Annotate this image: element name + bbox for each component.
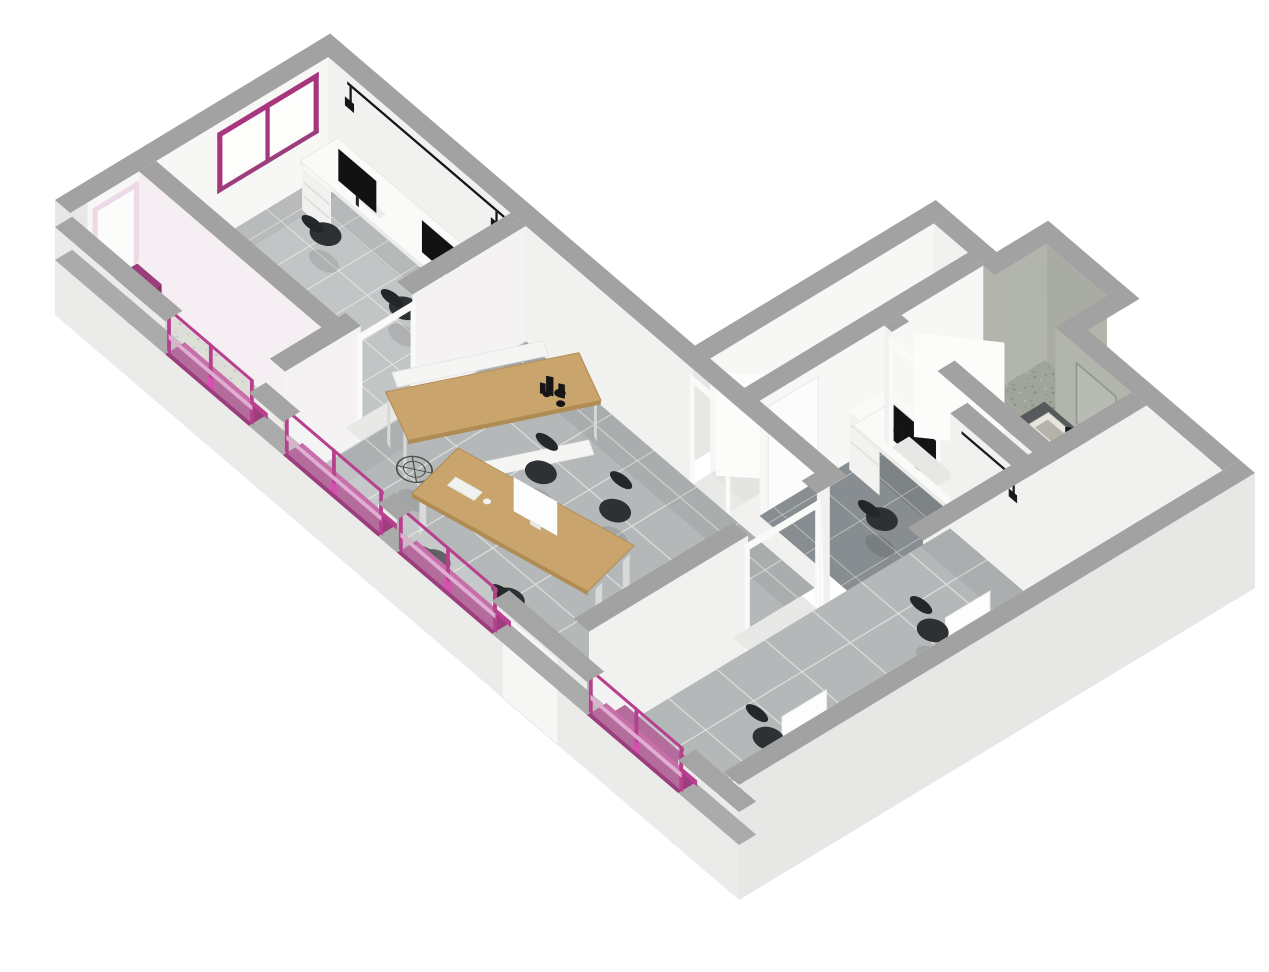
room-a-window-mullion <box>265 101 269 165</box>
shape <box>540 382 546 394</box>
shape <box>815 499 820 610</box>
shape <box>889 336 894 448</box>
shape <box>387 400 390 449</box>
room-a-window-frame <box>314 72 319 136</box>
shape <box>493 585 497 633</box>
shape <box>558 383 565 398</box>
shape <box>250 377 254 425</box>
shape <box>379 487 383 535</box>
shape <box>679 744 683 792</box>
floorplan-canvas <box>0 0 1269 972</box>
shape <box>690 373 695 485</box>
shape <box>546 376 553 397</box>
shape <box>134 180 139 264</box>
room-a-window-frame <box>217 130 222 194</box>
office-3d-floorplan-svg <box>0 0 1269 972</box>
